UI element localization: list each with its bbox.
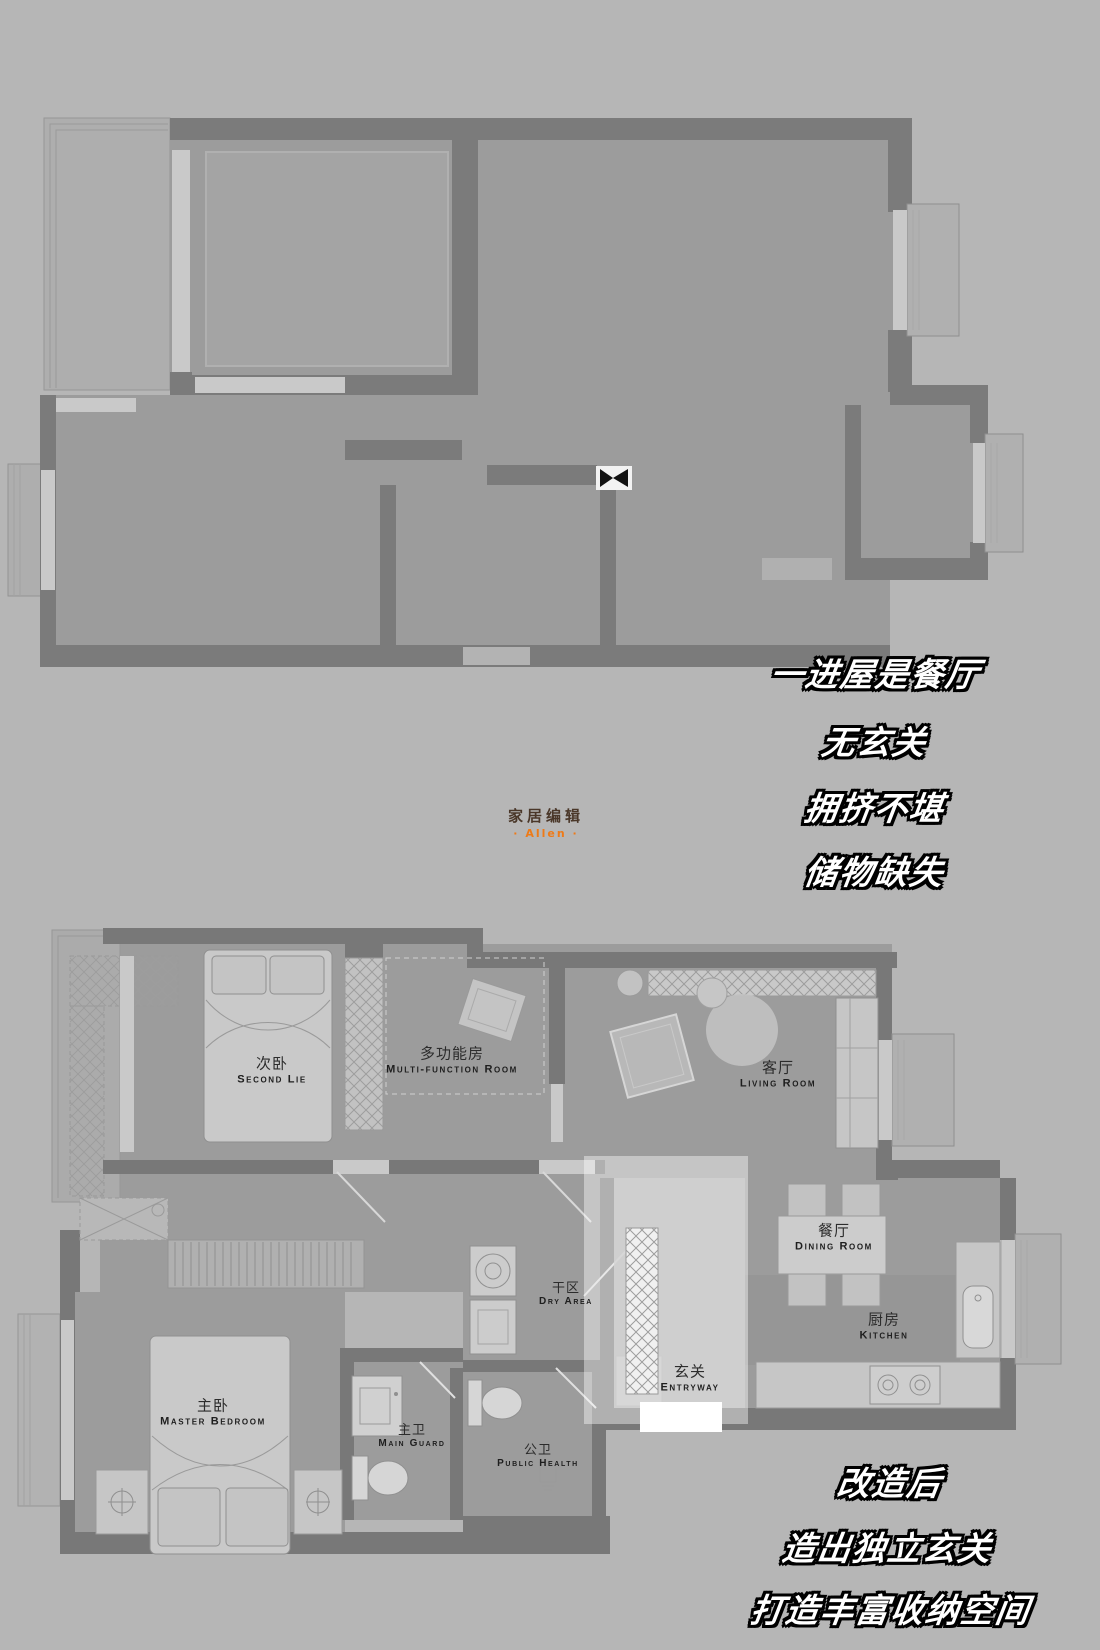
dry-counter: [470, 1300, 516, 1354]
issue-line-4: 储物缺失: [802, 846, 949, 894]
entrance-door: [640, 1402, 722, 1432]
room-name-en: Main Guard: [378, 1438, 445, 1449]
issue-line-1: 一进屋是餐厅: [768, 648, 985, 696]
note-line-3: 打造丰富收纳空间: [748, 1584, 1035, 1632]
room-name-zh: 主卧: [160, 1398, 266, 1415]
room-name-zh: 餐厅: [795, 1223, 873, 1240]
tv-cabinet: [648, 970, 876, 996]
issue-line-3: 拥挤不堪: [802, 782, 949, 830]
note-line-1: 改造后: [834, 1457, 946, 1505]
entry-shoe-cabinet: [626, 1228, 658, 1394]
bay-window-left: [8, 464, 41, 596]
room-name-en: Kitchen: [860, 1329, 909, 1341]
room-name-en: Master Bedroom: [160, 1415, 266, 1427]
room-label-public-health: 公卫 Public Health: [497, 1443, 579, 1469]
room-label-entryway: 玄关 Entryway: [660, 1364, 719, 1393]
logo-chinese-text: 家居编辑: [508, 808, 584, 827]
logo-english-text: · Allen ·: [508, 827, 584, 841]
nightstand-right: [294, 1470, 342, 1534]
bay-window-right-upper: [893, 204, 959, 336]
sofa: [836, 998, 878, 1148]
door-bowtie-symbol: [596, 466, 632, 490]
bay-window-right-lower: [973, 434, 1023, 552]
second-bed: [204, 950, 332, 1142]
room-name-en: Dining Room: [795, 1240, 873, 1252]
room-label-dry-area: 干区 Dry Area: [539, 1281, 593, 1307]
room-name-zh: 多功能房: [386, 1046, 518, 1063]
room-label-master-bedroom: 主卧 Master Bedroom: [160, 1398, 266, 1427]
room-name-en: Dry Area: [539, 1296, 593, 1307]
plant-pot: [617, 970, 643, 996]
room-name-zh: 干区: [539, 1281, 593, 1296]
stove: [870, 1366, 940, 1404]
room-name-en: Multi-function Room: [386, 1063, 518, 1075]
storage-x-box: [80, 1198, 168, 1240]
room-label-main-guard: 主卫 Main Guard: [378, 1423, 445, 1449]
kitchen-sink: [956, 1242, 1000, 1358]
bay-window-living: [879, 1034, 954, 1146]
nightstand-left: [96, 1470, 148, 1534]
room-label-multi-function: 多功能房 Multi-function Room: [386, 1046, 518, 1075]
floor-plan-before: [8, 118, 1023, 667]
room-name-zh: 玄关: [660, 1364, 719, 1381]
room-name-en: Living Room: [740, 1077, 816, 1089]
wardrobe-slats: [168, 1240, 364, 1288]
room-name-en: Public Health: [497, 1458, 579, 1469]
room-name-en: Second Lie: [237, 1073, 307, 1085]
room-name-zh: 公卫: [497, 1443, 579, 1458]
room-name-en: Entryway: [660, 1381, 719, 1393]
room-label-kitchen: 厨房 Kitchen: [860, 1312, 909, 1341]
issue-line-2: 无玄关: [819, 716, 931, 764]
room-name-zh: 次卧: [237, 1056, 307, 1073]
room-name-zh: 客厅: [740, 1060, 816, 1077]
room-label-living-room: 客厅 Living Room: [740, 1060, 816, 1089]
poster-stage: 次卧 Second Lie 多功能房 Multi-function Room 客…: [0, 0, 1100, 1650]
balcony-top-left: [44, 118, 170, 390]
balcony-master: [18, 1314, 60, 1506]
washing-machine: [470, 1246, 516, 1296]
bay-window-kitchen: [1002, 1234, 1061, 1364]
brand-logo: 家居编辑 · Allen ·: [508, 808, 584, 841]
side-table: [697, 978, 727, 1008]
master-bed: [150, 1336, 290, 1554]
note-line-2: 造出独立玄关: [780, 1522, 997, 1570]
room-label-dining-room: 餐厅 Dining Room: [795, 1223, 873, 1252]
room-name-zh: 主卫: [378, 1423, 445, 1438]
wardrobe-divider: [345, 958, 383, 1130]
room-label-second-bedroom: 次卧 Second Lie: [237, 1056, 307, 1085]
room-name-zh: 厨房: [860, 1312, 909, 1329]
